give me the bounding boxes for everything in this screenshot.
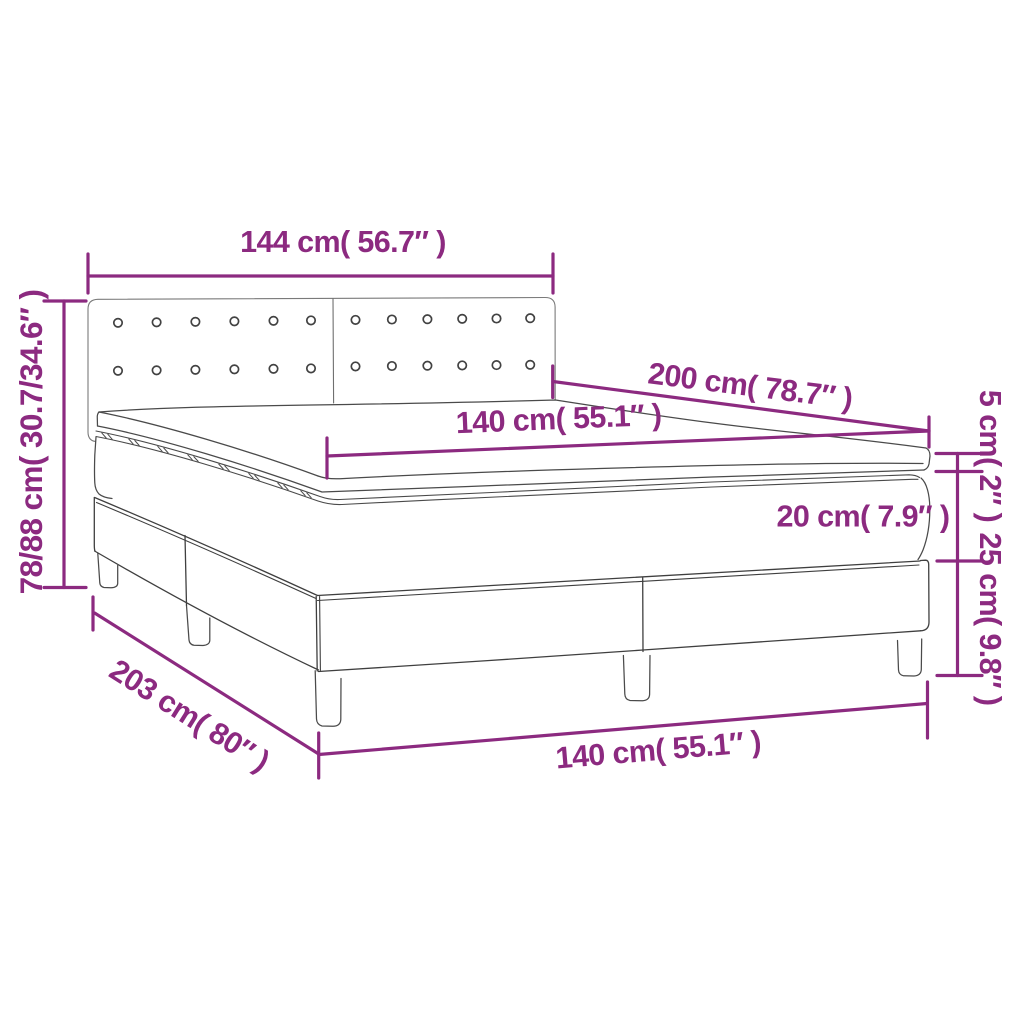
svg-text:144 cm( 56.7″ ): 144 cm( 56.7″ ) xyxy=(240,225,446,259)
svg-text:25 cm( 9.8″ ): 25 cm( 9.8″ ) xyxy=(973,533,1007,706)
svg-text:20 cm( 7.9″ ): 20 cm( 7.9″ ) xyxy=(777,500,950,534)
svg-text:78/88 cm( 30.7/34.6″ ): 78/88 cm( 30.7/34.6″ ) xyxy=(13,290,49,595)
svg-text:5 cm( 2″ ): 5 cm( 2″ ) xyxy=(973,390,1007,522)
